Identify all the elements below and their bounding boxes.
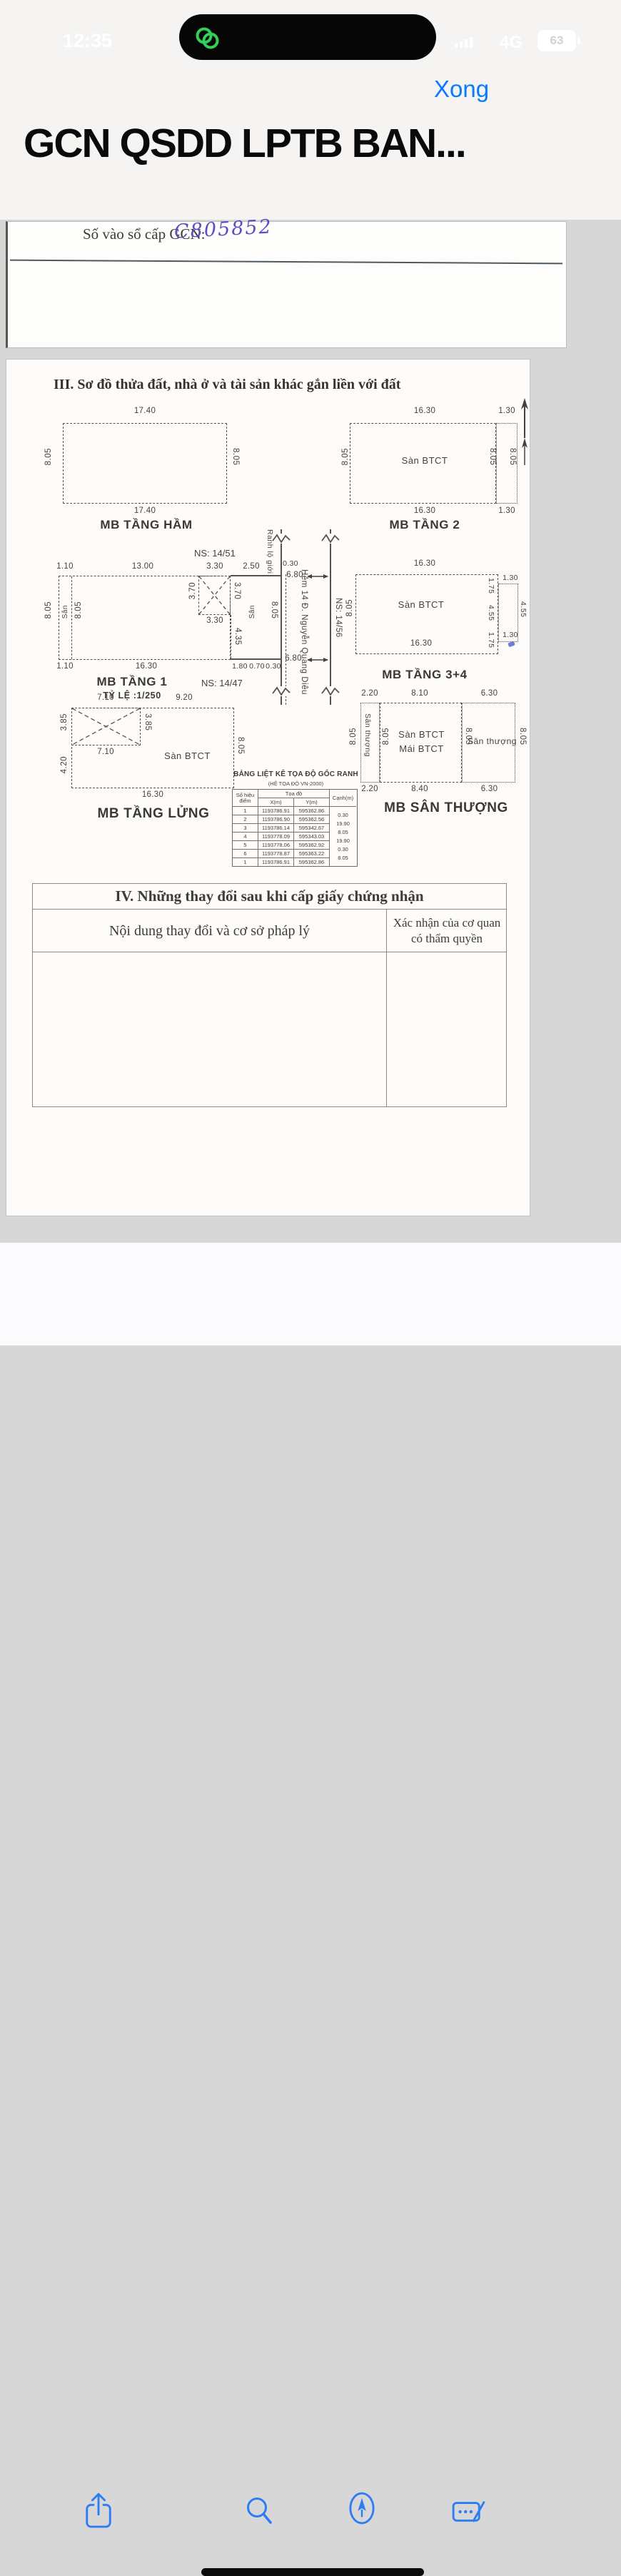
- link-icon: [193, 24, 222, 52]
- dim-label: 17.40: [120, 407, 170, 415]
- dim-label: 8.40: [398, 785, 441, 793]
- done-button[interactable]: Xong: [434, 76, 498, 103]
- dim-label: 8.05: [518, 728, 527, 745]
- cell-x: 1193786.91: [258, 807, 294, 815]
- dim-label: 0.30: [280, 559, 301, 568]
- cell-edge: 0.30: [330, 846, 356, 852]
- dim-label: 2.50: [238, 562, 264, 571]
- cell-y: 595342.67: [294, 824, 330, 833]
- plan-caption-san-thuong: MB SÂN THƯỢNG: [371, 800, 521, 816]
- dim-label: 3.85: [60, 713, 69, 730]
- plan-caption-tang-lung: MB TẦNG LỬNG: [79, 806, 228, 822]
- dim-label: 8.05: [508, 448, 517, 465]
- cell-point: 4: [233, 833, 258, 841]
- iphone-quicklook-screen: { "status_bar": { "time": "12:35", "netw…: [0, 0, 621, 1345]
- dim-label: 1.30: [494, 506, 520, 515]
- signature-autofill-icon[interactable]: [452, 2496, 486, 2525]
- plan-area-label: Mái BTCT: [391, 743, 452, 754]
- dim-label: 6.30: [470, 689, 509, 698]
- road-boundary-label: Ranh lộ giới: [266, 529, 274, 574]
- neighbor-label: NS: 14/56: [334, 598, 343, 638]
- dynamic-island[interactable]: [179, 14, 436, 60]
- plan-area-label: Sàn BTCT: [153, 750, 221, 761]
- dim-label: 6.80: [284, 571, 306, 579]
- dim-label: 6.30: [470, 785, 509, 793]
- cell-point: 5: [233, 841, 258, 850]
- cell-point: 2: [233, 815, 258, 824]
- plan-tang-1-top-extension: [231, 575, 281, 576]
- plan-area-label: Sàn BTCT: [385, 455, 464, 466]
- dim-label: 8.05: [382, 728, 390, 745]
- dim-label: 8.05: [44, 601, 53, 618]
- dim-label: 4.20: [60, 756, 69, 773]
- area-label: Sân thượng: [363, 713, 372, 757]
- dim-label: 1.75: [487, 578, 495, 594]
- road-line-right: [330, 529, 331, 705]
- road-line-left: [281, 529, 282, 705]
- plan-tang-1-bottom-extension: [231, 658, 281, 660]
- void-box-cross: [198, 576, 231, 615]
- cell-x: 1193778.09: [258, 833, 294, 841]
- cell-y: 595363.22: [294, 850, 330, 858]
- dim-label: 3.85: [143, 713, 152, 730]
- dim-label: 3.30: [202, 616, 228, 625]
- dim-label: 1.30: [494, 407, 520, 415]
- cell-point: 3: [233, 824, 258, 833]
- line-break-mark: [321, 686, 340, 696]
- dim-label: 8.05: [236, 737, 245, 754]
- dim-label: 8.05: [349, 728, 358, 745]
- network-type: 4G: [500, 33, 522, 53]
- dim-label: 4.35: [233, 628, 242, 645]
- dim-label: 1.80: [230, 662, 250, 671]
- dim-label: 3.70: [188, 582, 197, 599]
- coord-table-subtitle: (HỆ TỌA ĐỘ VN-2000): [230, 780, 362, 787]
- plan-tang-1-inner-line: [71, 576, 72, 659]
- dim-label: 1.10: [54, 562, 76, 571]
- dim-label: 4.55: [519, 601, 527, 617]
- dim-label: 13.00: [118, 562, 168, 571]
- cell-y: 595362.92: [294, 841, 330, 850]
- cell-y: 595343.03: [294, 833, 330, 841]
- section3-heading: III. Sơ đồ thửa đất, nhà ở và tài sản kh…: [54, 377, 400, 393]
- battery-nub: [577, 37, 580, 44]
- search-icon[interactable]: [245, 2495, 273, 2527]
- battery-percent: 63: [550, 34, 564, 48]
- dim-label: 16.30: [400, 559, 450, 568]
- dim-label: 0.30: [264, 662, 283, 671]
- cell-edge: 8.05: [330, 829, 356, 835]
- markup-icon[interactable]: [348, 2491, 375, 2525]
- coord-table: Số hiệu điểm Tọa độ Cạnh(m) X(m) Y(m) 1 …: [232, 789, 358, 867]
- dim-label: 8.05: [74, 601, 83, 618]
- dim-label: 17.40: [120, 506, 170, 515]
- dim-label: 7.10: [84, 693, 127, 702]
- plan-area-label: Sàn BTCT: [382, 599, 460, 610]
- cell-point: 1: [233, 807, 258, 815]
- cell-point: 1: [233, 858, 258, 867]
- cell-x: 1193786.90: [258, 815, 294, 824]
- dim-arrow: [306, 656, 330, 663]
- area-label: Sân: [61, 605, 69, 618]
- plan-caption-tang-34: MB TẦNG 3+4: [364, 668, 485, 682]
- plan-caption-tang-ham: MB TẦNG HẦM: [79, 518, 214, 532]
- line-break-mark: [272, 686, 291, 696]
- dim-label: 3.70: [233, 582, 241, 599]
- battery-icon: 63: [537, 30, 576, 51]
- cell-edge: 19.90: [330, 838, 356, 844]
- col-header-y: Y(m): [294, 798, 330, 807]
- col-header-x: X(m): [258, 798, 294, 807]
- cell-x: 1193778.87: [258, 850, 294, 858]
- area-label: Sân: [248, 605, 256, 618]
- area-label: Sân thượng: [468, 736, 512, 746]
- line-break-mark: [321, 534, 340, 544]
- cell-edge: 8.05: [330, 855, 356, 861]
- dim-label: 8.05: [341, 448, 350, 465]
- bottom-toolbar: [0, 1243, 621, 1345]
- dim-arrow: [306, 573, 330, 580]
- dim-label: 16.30: [396, 639, 446, 648]
- dim-label: 8.10: [398, 689, 441, 698]
- status-time: 12:35: [63, 30, 112, 52]
- cell-y: 595362.86: [294, 858, 330, 867]
- dim-label: 16.30: [111, 662, 182, 671]
- dim-label: 9.20: [163, 693, 206, 702]
- dim-label: 1.10: [54, 662, 76, 671]
- plan-san-thuong-mid: [380, 703, 462, 783]
- dim-label: 6.80: [283, 654, 304, 663]
- cell-x: 1193778.06: [258, 841, 294, 850]
- dim-label: 8.05: [345, 599, 354, 616]
- document-title: GCN QSDD LPTB BAN...: [24, 120, 609, 167]
- dim-label: 16.30: [117, 790, 188, 799]
- section4-table: IV. Những thay đổi sau khi cấp giấy chứn…: [32, 883, 507, 1107]
- col-header-point: Số hiệu điểm: [233, 790, 258, 807]
- dim-label: 1.30: [500, 631, 521, 639]
- plan-tang-ham-outline: [63, 423, 227, 504]
- col-header-coord: Tọa độ: [258, 790, 330, 798]
- dim-label: 1.30: [500, 574, 521, 582]
- edge-column: 0.30 19.90 8.05 19.90 0.30 8.05: [330, 807, 356, 867]
- void-box-cross: [71, 708, 141, 745]
- signal-icon: [455, 36, 475, 49]
- cell-x: 1193786.14: [258, 824, 294, 833]
- neighbor-label: NS: 14/51: [194, 548, 236, 559]
- dim-label: 8.05: [488, 448, 497, 465]
- section4-heading: IV. Những thay đổi sau khi cấp giấy chứn…: [33, 884, 506, 910]
- dim-label: 7.10: [84, 748, 127, 756]
- dim-label: 4.55: [487, 605, 495, 621]
- cell-x: 1193786.91: [258, 858, 294, 867]
- cell-y: 595362.86: [294, 807, 330, 815]
- plan-caption-tang-1: MB TẦNG 1: [89, 675, 175, 689]
- cell-edge: 19.90: [330, 820, 356, 827]
- share-icon[interactable]: [84, 2491, 113, 2530]
- road-name-label: Hẻm 14 Đ. Nguyễn Quang Diêu: [300, 569, 308, 695]
- dim-label: 2.20: [355, 689, 384, 698]
- dim-label: 3.30: [202, 562, 228, 571]
- dim-label: 16.30: [400, 407, 450, 415]
- cell-y: 595362.56: [294, 815, 330, 824]
- coord-table-title: BẢNG LIỆT KÊ TỌA ĐỘ GỐC RANH: [230, 770, 362, 778]
- dim-label: 8.05: [44, 448, 53, 465]
- plan-tang-1-sub-line: [231, 615, 231, 658]
- plan-area-label: Sàn BTCT: [391, 729, 452, 740]
- col-header-edge: Cạnh(m): [329, 790, 356, 807]
- section4-divider: [386, 910, 387, 1106]
- road-boundary-dashed-line: [286, 574, 286, 705]
- cell-edge: 0.30: [330, 812, 356, 818]
- dim-label: 8.05: [231, 448, 240, 465]
- section4-col-left: Nội dung thay đổi và cơ sở pháp lý: [33, 910, 386, 952]
- neighbor-label: NS: 14/47: [201, 678, 243, 688]
- home-indicator[interactable]: [201, 2568, 424, 2576]
- north-arrow-icon: [519, 397, 530, 468]
- cell-point: 6: [233, 850, 258, 858]
- line-break-mark: [272, 534, 291, 544]
- top-chrome: 12:35 4G 63 Xong GCN QSDD LPTB BAN...: [0, 0, 621, 220]
- dim-label: 8.05: [270, 601, 278, 618]
- dim-label: 16.30: [400, 506, 450, 515]
- plan-caption-tang-2: MB TẦNG 2: [368, 518, 482, 532]
- section4-col-right: Xác nhận của cơ quan có thẩm quyền: [386, 910, 508, 952]
- dim-label: 1.75: [487, 632, 495, 648]
